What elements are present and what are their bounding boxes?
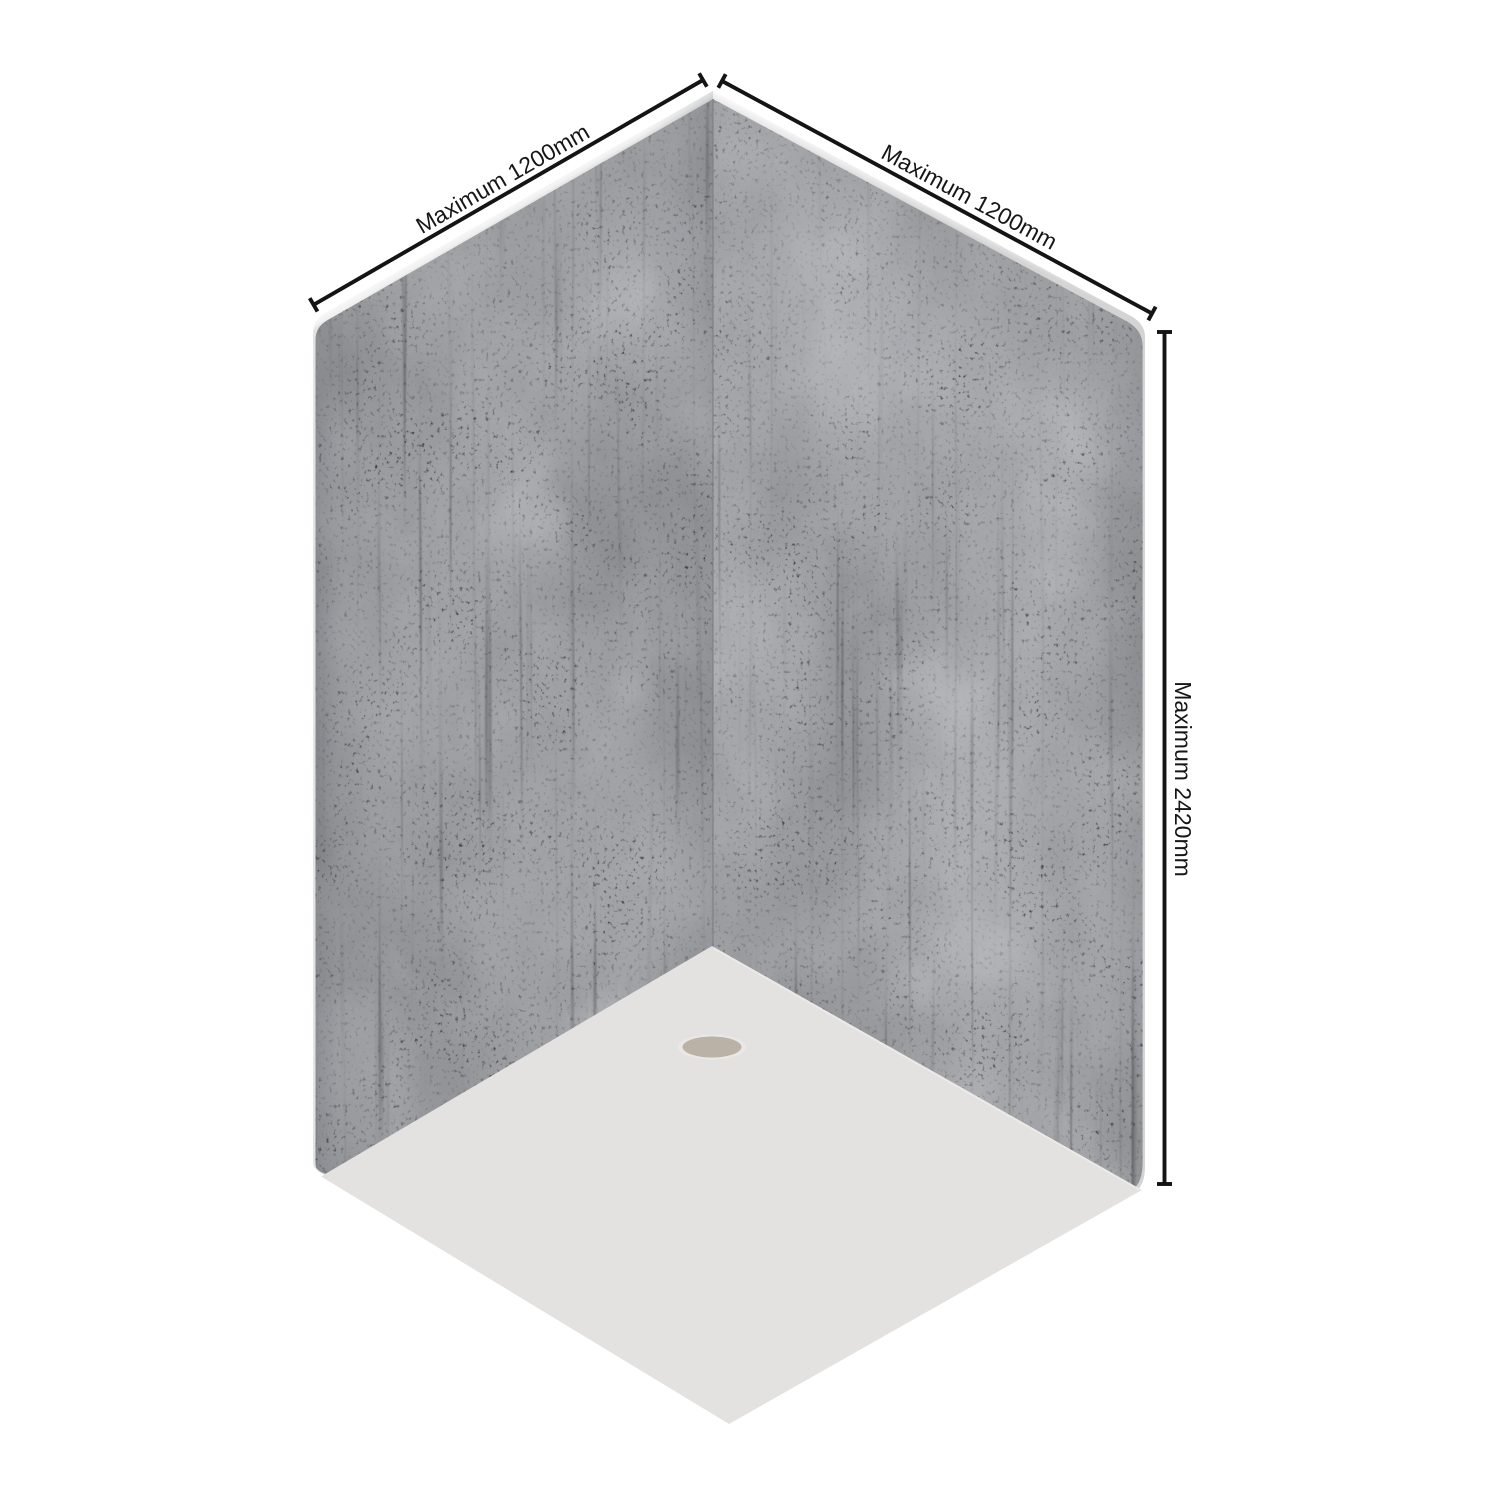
svg-text:Maximum 2420mm: Maximum 2420mm [1170,681,1196,877]
